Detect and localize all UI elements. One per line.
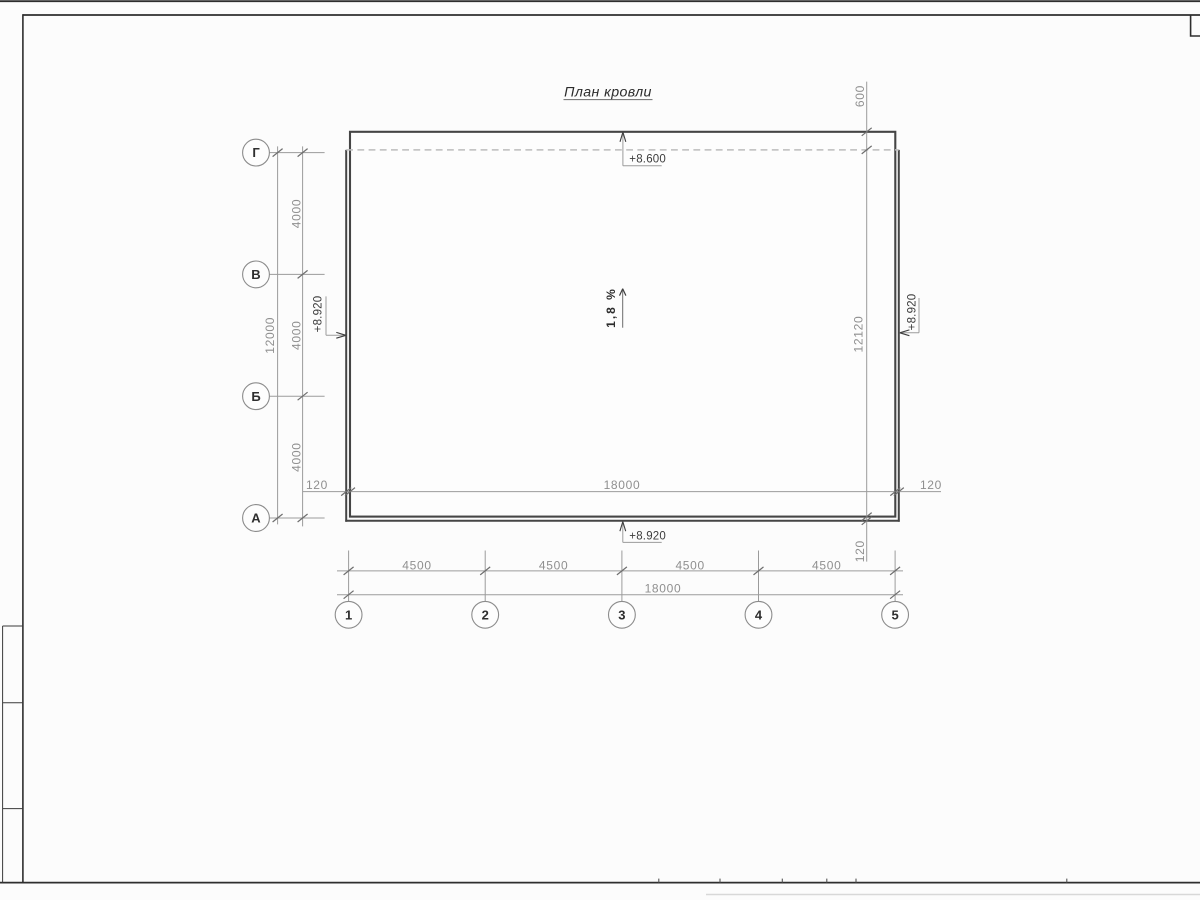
svg-text:+8.920: +8.920 — [313, 296, 325, 333]
svg-text:4000: 4000 — [289, 199, 303, 229]
svg-text:+8.920: +8.920 — [906, 294, 918, 331]
svg-text:План кровли: План кровли — [564, 85, 652, 101]
svg-text:4000: 4000 — [289, 321, 303, 351]
svg-text:1: 1 — [345, 607, 352, 622]
svg-text:3: 3 — [618, 607, 625, 622]
svg-text:1,8 %: 1,8 % — [604, 287, 618, 328]
svg-text:120: 120 — [306, 478, 328, 492]
svg-text:5: 5 — [891, 607, 898, 622]
svg-text:А: А — [251, 511, 261, 526]
svg-text:120: 120 — [853, 540, 867, 562]
svg-text:4500: 4500 — [675, 558, 705, 572]
svg-text:120: 120 — [920, 478, 942, 492]
svg-text:2: 2 — [482, 607, 489, 622]
svg-text:Б: Б — [251, 389, 260, 404]
svg-text:12000: 12000 — [263, 317, 277, 354]
svg-text:В: В — [251, 267, 260, 282]
svg-text:+8.600: +8.600 — [629, 154, 666, 166]
svg-text:Г: Г — [252, 145, 260, 160]
svg-text:4: 4 — [755, 607, 763, 622]
svg-text:4500: 4500 — [812, 558, 842, 572]
svg-text:18000: 18000 — [604, 478, 641, 492]
svg-text:+8.920: +8.920 — [629, 530, 666, 542]
svg-text:4000: 4000 — [289, 442, 303, 472]
svg-text:12120: 12120 — [852, 316, 866, 353]
svg-text:600: 600 — [853, 85, 867, 107]
svg-text:4500: 4500 — [539, 558, 569, 572]
svg-text:18000: 18000 — [645, 582, 682, 596]
svg-text:4500: 4500 — [402, 558, 432, 572]
